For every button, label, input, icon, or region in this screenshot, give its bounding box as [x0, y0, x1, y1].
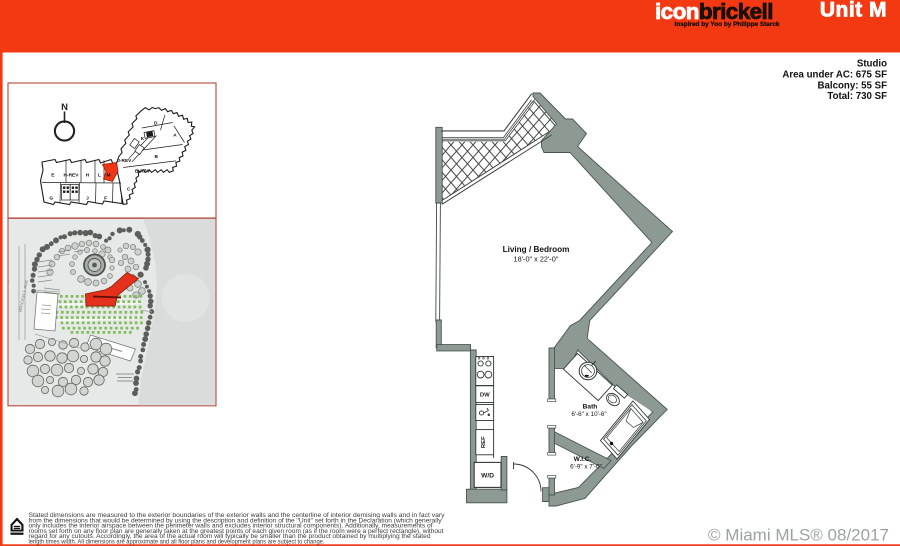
svg-text:DW: DW — [480, 393, 490, 399]
svg-text:Bath: Bath — [583, 403, 598, 410]
svg-text:W/D: W/D — [481, 473, 494, 480]
svg-text:6'-6" x 10'-6": 6'-6" x 10'-6" — [571, 411, 606, 418]
svg-text:Unit M: Unit M — [820, 0, 887, 22]
svg-text:Studio: Studio — [857, 58, 887, 69]
svg-text:length times width. All dimens: length times width. All dimensions are a… — [29, 539, 325, 546]
svg-text:B: B — [154, 154, 158, 160]
svg-text:REF: REF — [481, 436, 487, 448]
svg-text:W.I.C.: W.I.C. — [574, 456, 592, 463]
svg-text:Total: 730 SF: Total: 730 SF — [827, 91, 887, 102]
svg-text:F: F — [104, 196, 107, 202]
svg-text:Balcony: 55 SF: Balcony: 55 SF — [818, 80, 888, 91]
svg-text:B-REV: B-REV — [135, 169, 151, 175]
svg-text:G: G — [49, 196, 53, 202]
svg-text:H: H — [86, 173, 90, 179]
svg-text:J: J — [86, 196, 89, 202]
svg-text:M: M — [107, 173, 111, 179]
svg-text:© Miami MLS® 08/2017: © Miami MLS® 08/2017 — [708, 526, 889, 545]
svg-text:6'-9" x 7'-0": 6'-9" x 7'-0" — [570, 464, 602, 471]
svg-text:N: N — [61, 102, 68, 113]
svg-text:J-REV: J-REV — [117, 158, 132, 164]
svg-text:C: C — [127, 186, 131, 192]
svg-text:A: A — [173, 133, 177, 139]
svg-text:Living / Bedroom: Living / Bedroom — [503, 245, 570, 254]
svg-text:Inspired by Yoo by Philippe St: Inspired by Yoo by Philippe Starck — [675, 21, 781, 28]
svg-text:L: L — [98, 173, 101, 179]
svg-text:18'-0" x 22'-0": 18'-0" x 22'-0" — [514, 254, 559, 263]
svg-text:K: K — [141, 136, 145, 142]
svg-text:H-REV: H-REV — [64, 173, 80, 179]
svg-text:Area under AC: 675 SF: Area under AC: 675 SF — [782, 70, 887, 81]
svg-text:D: D — [154, 121, 158, 127]
